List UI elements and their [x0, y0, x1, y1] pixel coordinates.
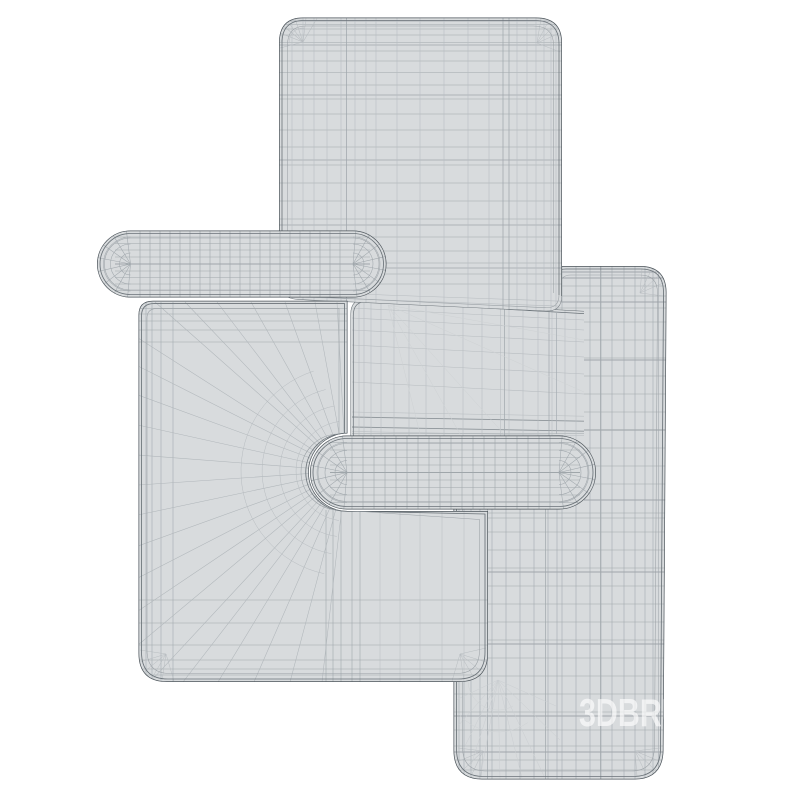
- svg-text:3DBRUTE: 3DBRUTE: [579, 691, 723, 734]
